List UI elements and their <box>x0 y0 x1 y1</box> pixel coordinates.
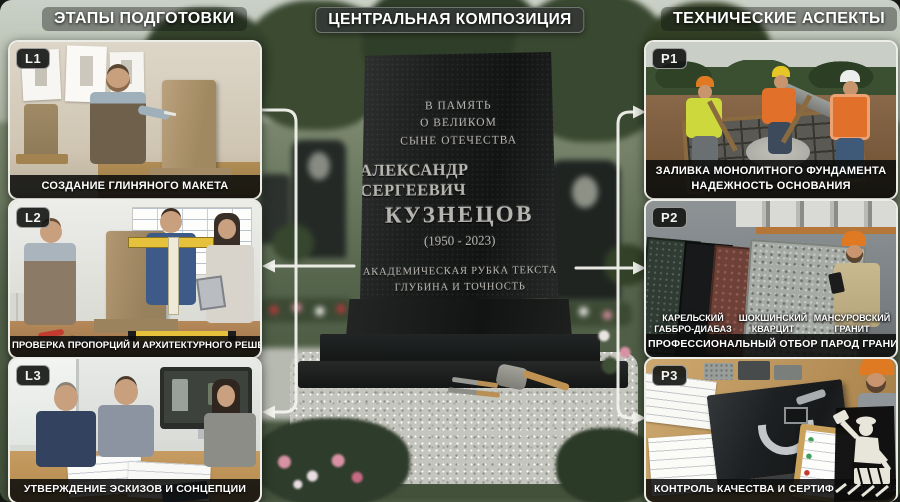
render-monument-thumb <box>172 379 188 411</box>
sculptor-head <box>106 68 130 92</box>
worker-head <box>774 75 788 89</box>
infographic-canvas: В ПАМЯТЬ О ВЕЛИКОМ СЫНЕ ОТЕЧЕСТВА АЛЕКСА… <box>0 0 900 502</box>
designer-head <box>218 219 236 239</box>
sculptor-body-apron <box>90 92 146 164</box>
stone-label-line: МАНСУРОВСКИЙ <box>812 313 892 324</box>
head-glyph <box>859 422 873 436</box>
stone-label-line: ШОКШИНСКИЙ <box>734 313 812 324</box>
panel-caption: ПРОФЕССИОНАЛЬНЫЙ ОТБОР ПАРОД ГРАНИТА <box>646 334 896 357</box>
worker-hivis-vest <box>762 88 796 124</box>
inspector-head <box>866 373 886 393</box>
panel-caption: ПРОВЕРКА ПРОПОРЦИЙ И АРХИТЕКТУРНОГО РЕШЕ… <box>10 336 260 357</box>
arrowhead-left-bottom <box>262 406 275 419</box>
worker-head <box>698 85 712 99</box>
tablet <box>196 275 226 310</box>
stonemason-logo-watermark <box>826 406 900 502</box>
craftsman-body <box>24 243 76 325</box>
caliper-rule <box>168 237 179 315</box>
granite-sample-block <box>738 361 770 380</box>
stone-type-label: МАНСУРОВСКИЙ ГРАНИТ <box>812 313 892 336</box>
client-suit <box>36 411 96 467</box>
panel-badge: L2 <box>16 207 50 228</box>
stone-type-label: ШОКШИНСКИЙ КВАРЦИТ <box>734 313 812 336</box>
panel-L1-clay-model: L1 СОЗДАНИЕ ГЛИНЯНОГО МАКЕТА <box>8 40 262 200</box>
panel-badge: L1 <box>16 48 50 69</box>
designer-blazer <box>204 413 256 467</box>
panel-L2-proportions: L2 ПРОВЕРКА ПРОПОРЦИЙ И АРХИТЕКТУРНОГО Р… <box>8 199 262 359</box>
designer-head <box>217 385 235 407</box>
panel-P1-foundation: P1 ЗАЛИВКА МОНОЛИТНОГО ФУНДАМЕНТА НАДЕЖН… <box>644 40 898 200</box>
manager-shirt <box>98 405 154 457</box>
panel-badge: P1 <box>652 48 687 69</box>
architect-head <box>160 211 182 233</box>
client-head <box>54 385 78 411</box>
granite-sample-block <box>774 365 802 380</box>
panel-badge: L3 <box>16 365 50 386</box>
manager-head <box>114 379 138 405</box>
worker-hivis-vest <box>830 94 870 140</box>
panel-caption-two-line: ЗАЛИВКА МОНОЛИТНОГО ФУНДАМЕНТА НАДЕЖНОСТ… <box>646 160 896 198</box>
panel-badge: P3 <box>652 365 687 386</box>
inspector-head <box>846 245 863 263</box>
caption-line-1: ЗАЛИВКА МОНОЛИТНОГО ФУНДАМЕНТА <box>648 164 894 178</box>
clay-stele-model <box>162 80 216 172</box>
right-column-header: ТЕХНИЧЕСКИЕ АСПЕКТЫ <box>661 7 897 31</box>
micrometer-readout <box>784 407 808 424</box>
panel-badge: P2 <box>652 207 687 228</box>
right-bracket-line <box>618 112 634 418</box>
stone-label-line: КАРЕЛЬСКИЙ <box>652 313 734 324</box>
caption-line-2: НАДЕЖНОСТЬ ОСНОВАНИЯ <box>648 179 894 193</box>
warehouse-shelf <box>736 201 896 227</box>
stool <box>16 154 68 164</box>
left-bracket-line <box>258 110 296 412</box>
inspector-helmet <box>842 231 866 246</box>
small-clay-model <box>24 104 58 156</box>
left-column-header: ЭТАПЫ ПОДГОТОВКИ <box>42 7 247 31</box>
stone-type-label: КАРЕЛЬСКИЙ ГАББРО-ДИАБАЗ <box>652 313 734 336</box>
panel-caption: УТВЕРЖДЕНИЕ ЭСКИЗОВ И СОНЦЕПЦИИ <box>10 479 260 502</box>
arrowhead-left-middle <box>262 260 275 273</box>
panel-P2-granite: КАРЕЛЬСКИЙ ГАББРО-ДИАБАЗ ШОКШИНСКИЙ КВАР… <box>644 199 898 359</box>
sketch-monument-drawing <box>80 56 93 86</box>
stone-label-line: КВАРЦИТ <box>734 324 812 335</box>
center-header: ЦЕНТРАЛЬНАЯ КОМПОЗИЦИЯ <box>315 7 584 33</box>
stone-label-line: ГРАНИТ <box>812 324 892 335</box>
shelf-beam <box>756 227 896 234</box>
granite-sample-block <box>704 363 734 380</box>
stone-label-line: ГАББРО-ДИАБАЗ <box>652 324 734 335</box>
panel-L3-approval: L3 УТВЕРЖДЕНИЕ ЭСКИЗОВ И СОНЦЕПЦИИ <box>8 357 262 502</box>
panel-caption: СОЗДАНИЕ ГЛИНЯНОГО МАКЕТА <box>10 175 260 198</box>
